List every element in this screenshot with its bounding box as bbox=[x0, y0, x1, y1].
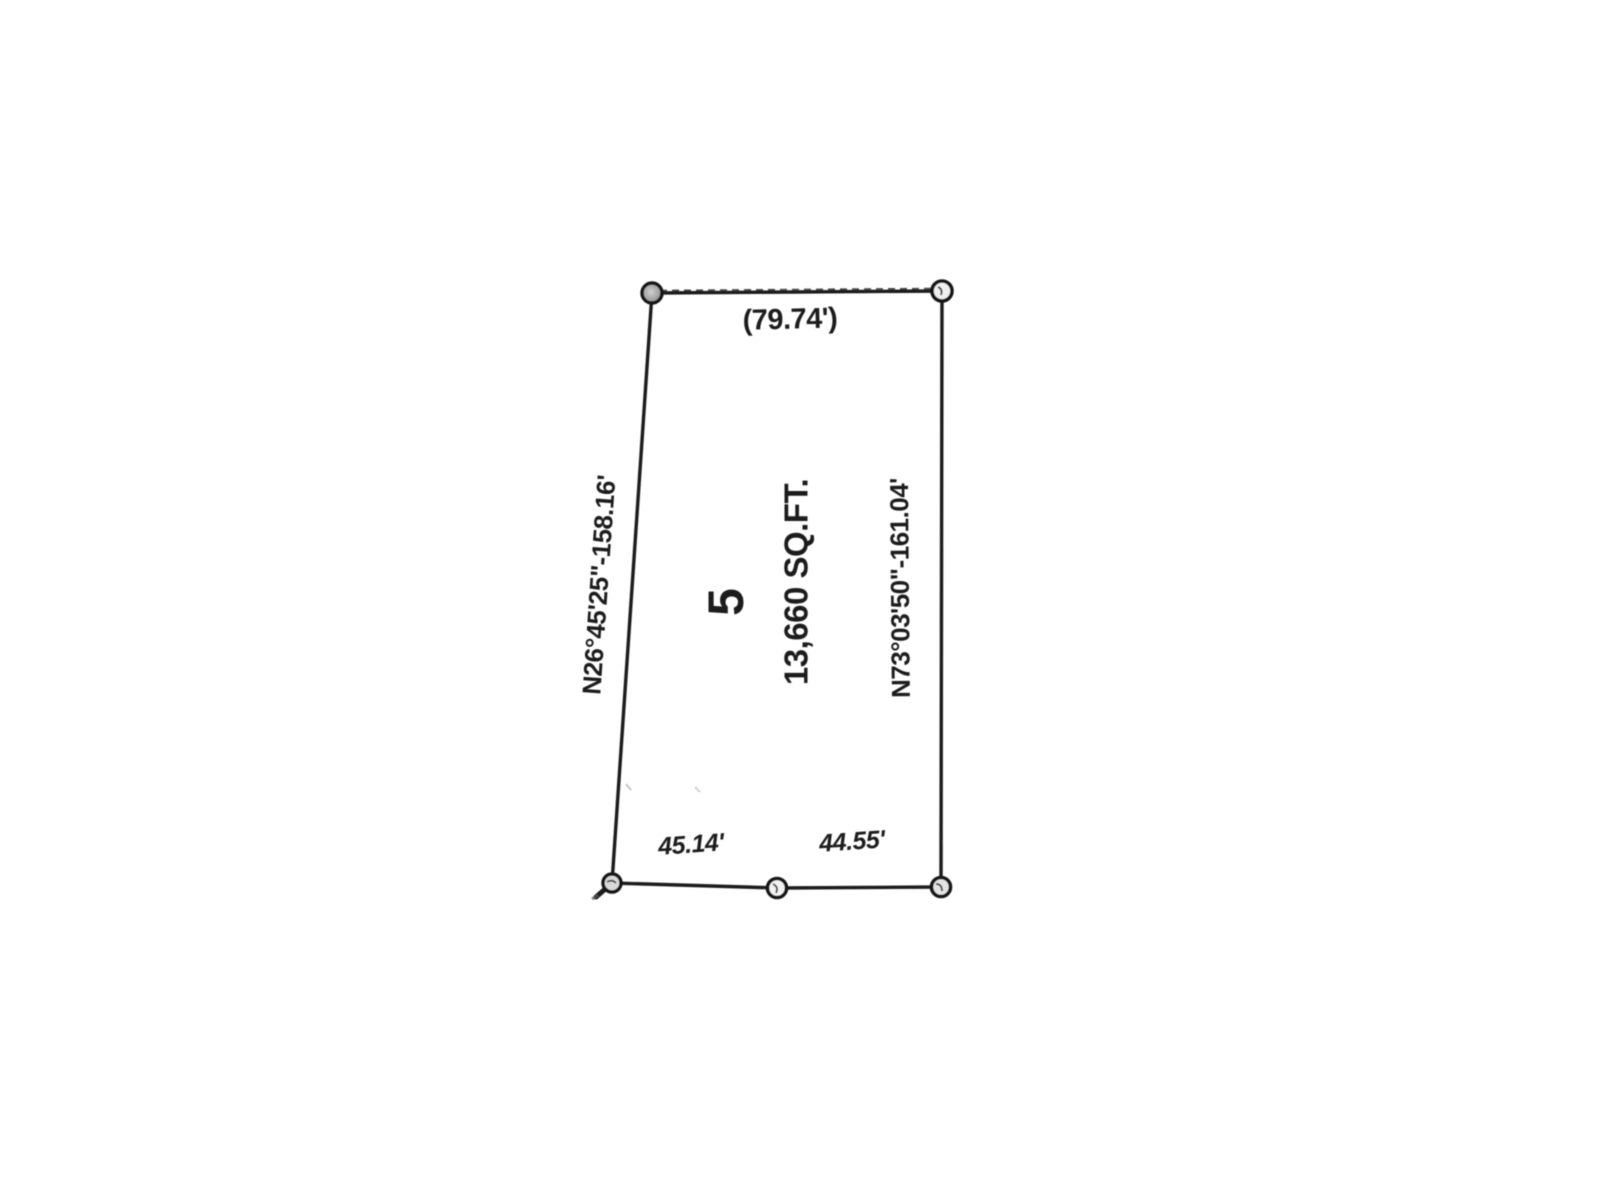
lot-area-label: 13,660 SQ.FT. bbox=[778, 479, 815, 685]
plat-drawing: (79.74') N26°45'25"-158.16' N73°03'50"-1… bbox=[0, 0, 1600, 1200]
monument-top-left-icon bbox=[642, 283, 662, 303]
bottom-right-dimension-label: 44.55' bbox=[817, 825, 887, 858]
scan-smudge bbox=[626, 784, 631, 790]
scanned-plat-page: (79.74') N26°45'25"-158.16' N73°03'50"-1… bbox=[0, 0, 1600, 1200]
monument-bottom-left-icon bbox=[603, 874, 621, 892]
right-bearing-label: N73°03'50"-161.04' bbox=[884, 478, 916, 698]
lot-number-label: 5 bbox=[698, 588, 754, 616]
top-dimension-label: (79.74') bbox=[742, 302, 838, 336]
left-bearing-label: N26°45'25"-158.16' bbox=[576, 474, 621, 695]
bottom-left-dimension-label: 45.14' bbox=[656, 828, 726, 861]
scan-smudge bbox=[695, 787, 700, 792]
